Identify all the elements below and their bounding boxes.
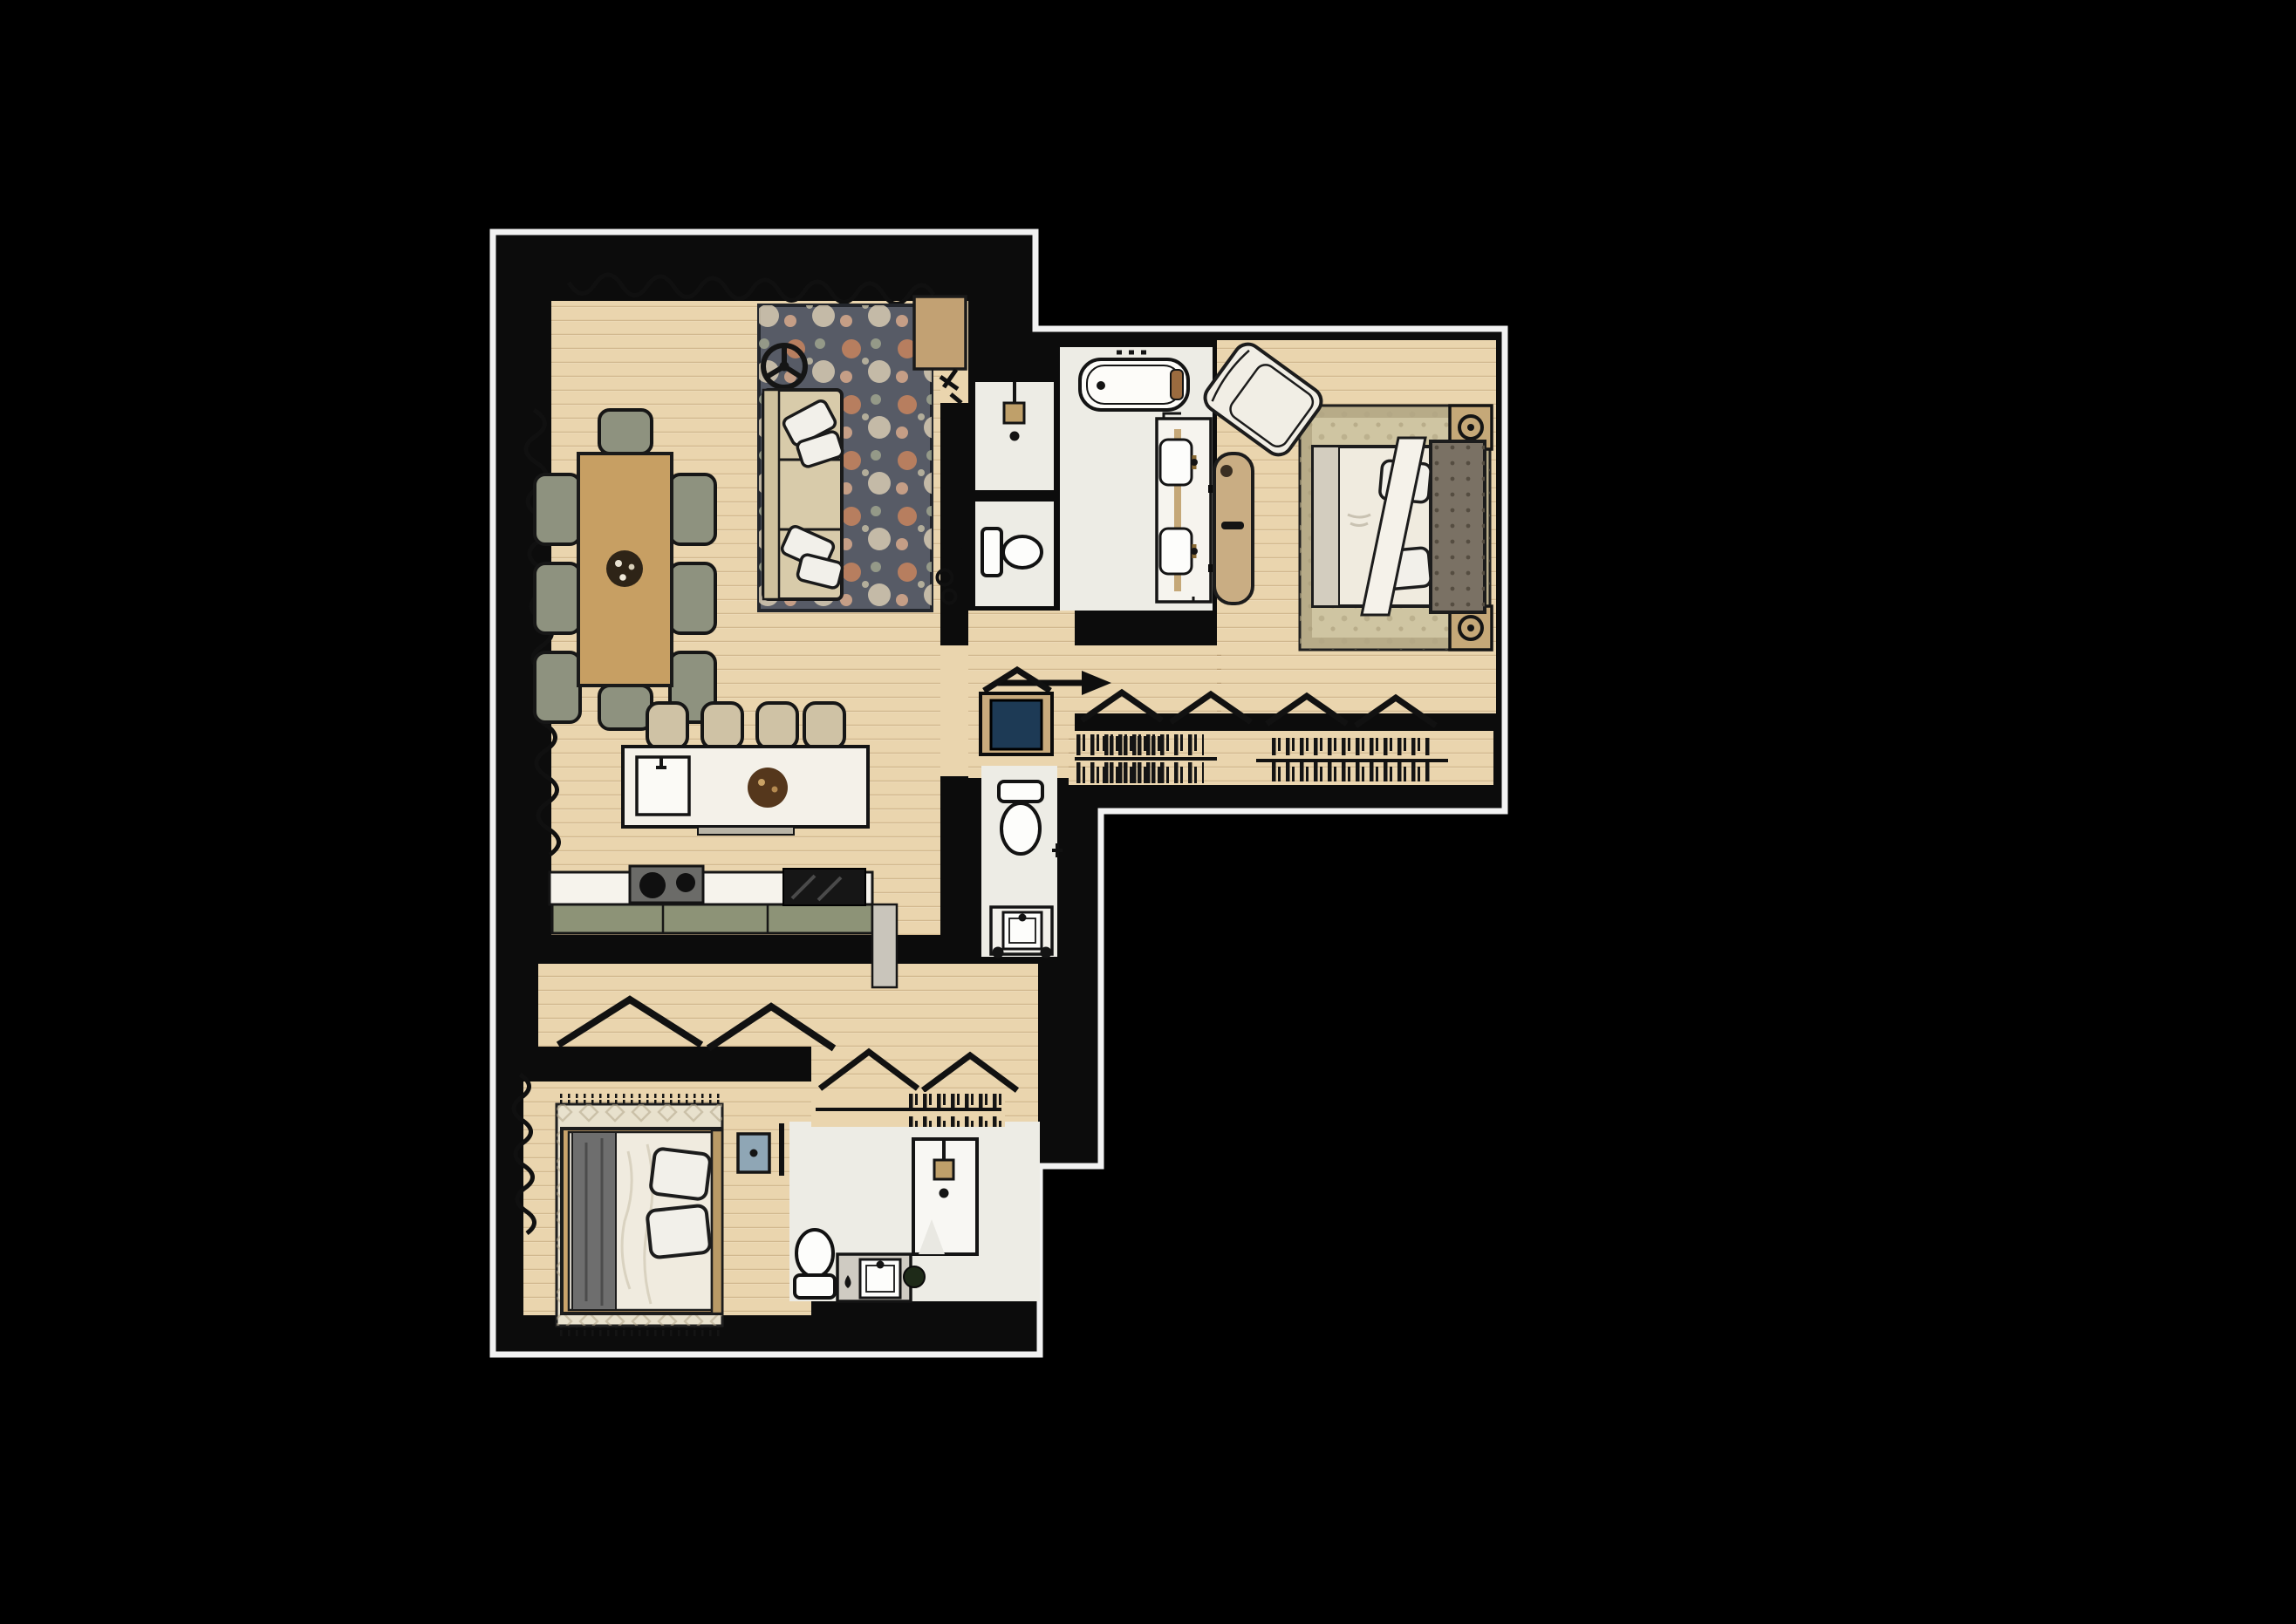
double-vanity xyxy=(1157,413,1211,602)
laundry-closet xyxy=(981,693,1052,754)
dining-chair-head xyxy=(599,410,652,454)
fruit xyxy=(772,787,778,793)
bedroom2-nightstand xyxy=(738,1134,769,1172)
foot-blanket xyxy=(1313,447,1339,606)
vanity-sink xyxy=(1160,529,1192,574)
shower-head xyxy=(934,1160,953,1179)
vanity-knob xyxy=(1041,947,1052,959)
washer-unit xyxy=(991,700,1042,749)
floor-plan-page xyxy=(0,0,2296,1624)
shower-drain xyxy=(1010,432,1020,441)
potted-plant xyxy=(904,1266,925,1287)
credenza xyxy=(914,297,966,369)
bar-stool xyxy=(757,703,797,748)
cabinet-end-panel xyxy=(872,904,897,987)
dining-chair xyxy=(535,652,580,722)
table-centerpiece xyxy=(606,550,643,587)
wall-niche xyxy=(940,548,965,559)
dining-chair-foot xyxy=(599,686,652,729)
toilet-tank xyxy=(795,1275,835,1298)
centerpiece-flower xyxy=(619,574,626,581)
dining-chair xyxy=(670,474,715,544)
vanity-sink xyxy=(1160,440,1192,485)
bed2-grey-blanket xyxy=(572,1132,616,1310)
toilet-bowl xyxy=(796,1230,833,1277)
dining-chair xyxy=(535,563,580,633)
floor-plan-image xyxy=(0,0,2296,1624)
bathtub xyxy=(1080,352,1188,410)
powder-vanity xyxy=(991,907,1052,959)
bath2-shower xyxy=(913,1139,977,1254)
kitchen-base-cabinets xyxy=(552,904,872,933)
dining-chair xyxy=(535,474,580,544)
headboard-tufting xyxy=(1431,441,1485,612)
tub-pillow xyxy=(1171,370,1183,399)
bath2-vanity xyxy=(837,1254,925,1301)
bar-stool xyxy=(702,703,742,748)
nightstand-knob xyxy=(750,1150,758,1157)
burner xyxy=(676,873,695,892)
faucet xyxy=(877,1261,885,1269)
fruit-bowl xyxy=(748,768,788,808)
sofa-back xyxy=(763,390,779,599)
toilet-bowl xyxy=(1001,803,1040,854)
bench-cabinet xyxy=(1214,454,1253,604)
fruit xyxy=(758,779,765,786)
shower-head xyxy=(1004,403,1024,423)
centerpiece-flower xyxy=(629,564,635,570)
toilet-tank xyxy=(982,529,1001,576)
vanity-knob xyxy=(993,947,1004,959)
rug-fringe-top xyxy=(557,1094,722,1103)
island-counter-ledge xyxy=(698,827,794,835)
bed2-pillow xyxy=(650,1148,711,1199)
toilet-tank xyxy=(999,781,1042,802)
bathroom2-door-leaf xyxy=(779,1123,784,1176)
bench-handle xyxy=(1221,522,1244,529)
powder-toilet xyxy=(999,781,1042,854)
centerpiece-flower xyxy=(615,560,622,567)
bath2-toilet xyxy=(795,1230,835,1298)
oven xyxy=(783,869,865,905)
bed2-pillow xyxy=(646,1205,710,1259)
toilet-bowl xyxy=(1003,536,1042,568)
tub-drain xyxy=(1097,381,1105,390)
burner xyxy=(639,872,666,898)
bench-cup xyxy=(1220,465,1233,477)
shower-drain xyxy=(940,1189,949,1198)
sofa xyxy=(763,390,844,599)
faucet xyxy=(1019,914,1027,922)
dining-chair xyxy=(670,563,715,633)
faucet xyxy=(1191,548,1198,555)
rug-fringe-bottom xyxy=(557,1327,722,1336)
bar-stool xyxy=(804,703,844,748)
living-to-hall-opening xyxy=(940,645,968,776)
faucet xyxy=(1191,459,1198,466)
bed2-headboard xyxy=(712,1130,722,1314)
bed2 xyxy=(562,1129,722,1314)
master-bed xyxy=(1313,438,1485,615)
bar-stool xyxy=(647,703,687,748)
